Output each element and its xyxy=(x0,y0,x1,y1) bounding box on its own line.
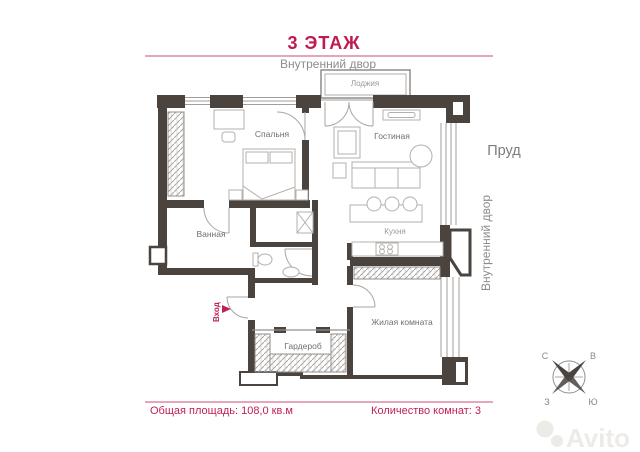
bar-stool xyxy=(403,197,417,211)
pond-label: Пруд xyxy=(487,143,521,159)
bedroom-closet xyxy=(168,112,184,196)
floor-plan-image: 3 ЭТАЖ Внутренний двор Лоджия xyxy=(0,0,640,452)
round-table xyxy=(410,145,432,167)
bathroom-label: Ванная xyxy=(196,229,226,239)
wardrobe-shelf xyxy=(255,334,270,372)
floorplan-page: 3 ЭТАЖ Внутренний двор Лоджия xyxy=(0,0,640,452)
pillow xyxy=(270,152,292,163)
sofa xyxy=(352,162,420,188)
habitable-room-label: Жилая комната xyxy=(371,317,433,327)
total-area-label: Общая площадь: 108,0 кв.м xyxy=(150,405,293,417)
page-title: 3 ЭТАЖ xyxy=(288,33,361,53)
bedroom-label: Спальня xyxy=(255,129,290,139)
nightstand xyxy=(296,190,308,200)
courtyard-top-label: Внутренний двор xyxy=(280,57,376,71)
compass-icon: С В З Ю xyxy=(542,351,598,407)
compass-south: Ю xyxy=(588,397,597,407)
wardrobe-shelf xyxy=(270,354,331,372)
rooms-count-label: Количество комнат: 3 xyxy=(371,405,481,417)
courtyard-right-label: Внутренний двор xyxy=(479,195,493,291)
compass-north: С xyxy=(542,351,549,361)
nightstand xyxy=(229,190,242,200)
wardrobe-label: Гардероб xyxy=(284,341,322,351)
side-table xyxy=(333,163,346,178)
tv-console xyxy=(383,110,420,120)
avito-logo-text: Avito xyxy=(566,423,630,452)
avito-watermark: Avito xyxy=(537,421,631,452)
compass-east: В xyxy=(590,351,596,361)
bar-stool xyxy=(385,197,399,211)
compass-west: З xyxy=(544,397,549,407)
avito-logo-dot xyxy=(551,435,563,447)
kitchen-label: Кухня xyxy=(384,227,405,236)
toilet-tank xyxy=(253,253,258,266)
pillow xyxy=(246,152,268,163)
entrance-label: Вход xyxy=(212,302,221,322)
entrance-arrow-icon xyxy=(222,305,231,313)
loggia: Лоджия xyxy=(321,70,410,98)
bar-stool xyxy=(367,197,381,211)
loggia-label: Лоджия xyxy=(351,79,379,88)
wc-sink xyxy=(283,267,299,277)
living-room-label: Гостиная xyxy=(374,131,410,141)
desk xyxy=(214,110,244,129)
wardrobe-shelf xyxy=(331,334,346,372)
toilet xyxy=(258,254,272,265)
avito-logo-dot xyxy=(537,421,554,438)
desk-chair xyxy=(222,132,235,142)
room-closet xyxy=(354,267,440,279)
